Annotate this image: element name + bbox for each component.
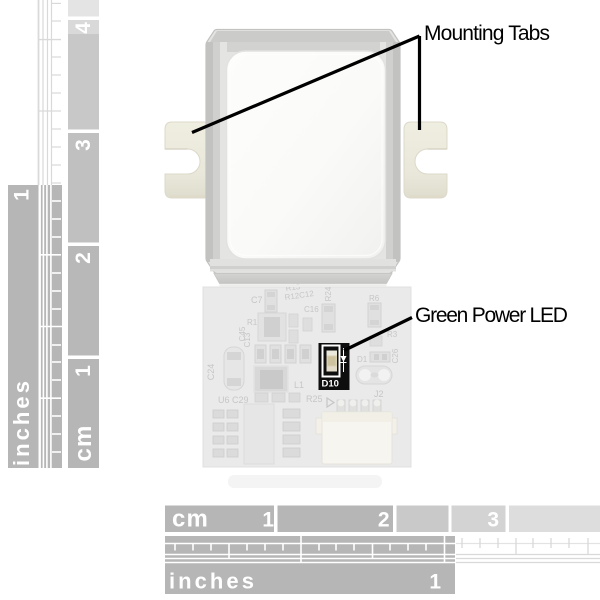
svg-text:inches: inches — [9, 378, 34, 466]
svg-text:2: 2 — [378, 509, 390, 532]
svg-text:R1: R1 — [247, 318, 258, 327]
svg-text:C24: C24 — [206, 364, 216, 381]
svg-text:inches: inches — [169, 569, 257, 594]
svg-text:cm: cm — [70, 424, 97, 461]
svg-text:R25: R25 — [306, 394, 323, 404]
svg-text:R3: R3 — [387, 330, 398, 339]
svg-text:Green Power LED: Green Power LED — [415, 304, 568, 327]
svg-text:R6: R6 — [369, 294, 380, 303]
svg-text:4: 4 — [72, 22, 95, 34]
svg-text:Mounting Tabs: Mounting Tabs — [424, 22, 550, 45]
svg-text:D10: D10 — [322, 379, 339, 390]
svg-text:J2: J2 — [374, 389, 384, 399]
svg-text:1: 1 — [11, 189, 34, 201]
svg-text:L1: L1 — [294, 380, 304, 390]
svg-text:C26: C26 — [391, 348, 400, 363]
svg-text:C7: C7 — [251, 295, 263, 305]
svg-text:1: 1 — [72, 365, 95, 377]
svg-text:3: 3 — [487, 509, 499, 532]
svg-text:3: 3 — [72, 139, 95, 151]
svg-text:C16: C16 — [304, 305, 319, 314]
svg-text:2: 2 — [72, 252, 95, 264]
svg-text:C13: C13 — [243, 332, 252, 347]
svg-text:R24: R24 — [324, 286, 333, 301]
svg-text:1: 1 — [262, 509, 274, 532]
svg-text:1: 1 — [429, 571, 441, 594]
svg-text:cm: cm — [172, 506, 209, 533]
svg-text:D1: D1 — [357, 355, 368, 364]
